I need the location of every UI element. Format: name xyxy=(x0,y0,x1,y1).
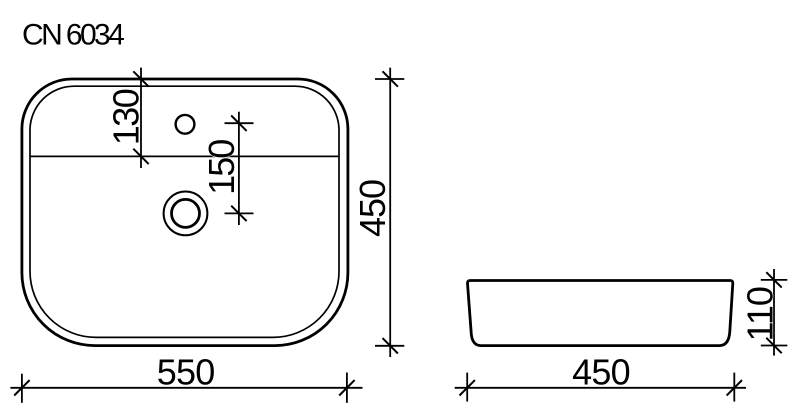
svg-text:550: 550 xyxy=(157,352,215,393)
svg-text:110: 110 xyxy=(739,287,780,341)
svg-text:450: 450 xyxy=(572,352,630,393)
svg-text:130: 130 xyxy=(105,89,146,145)
svg-text:150: 150 xyxy=(201,140,242,195)
svg-text:450: 450 xyxy=(352,180,393,237)
svg-text:CN 6034: CN 6034 xyxy=(22,19,124,52)
